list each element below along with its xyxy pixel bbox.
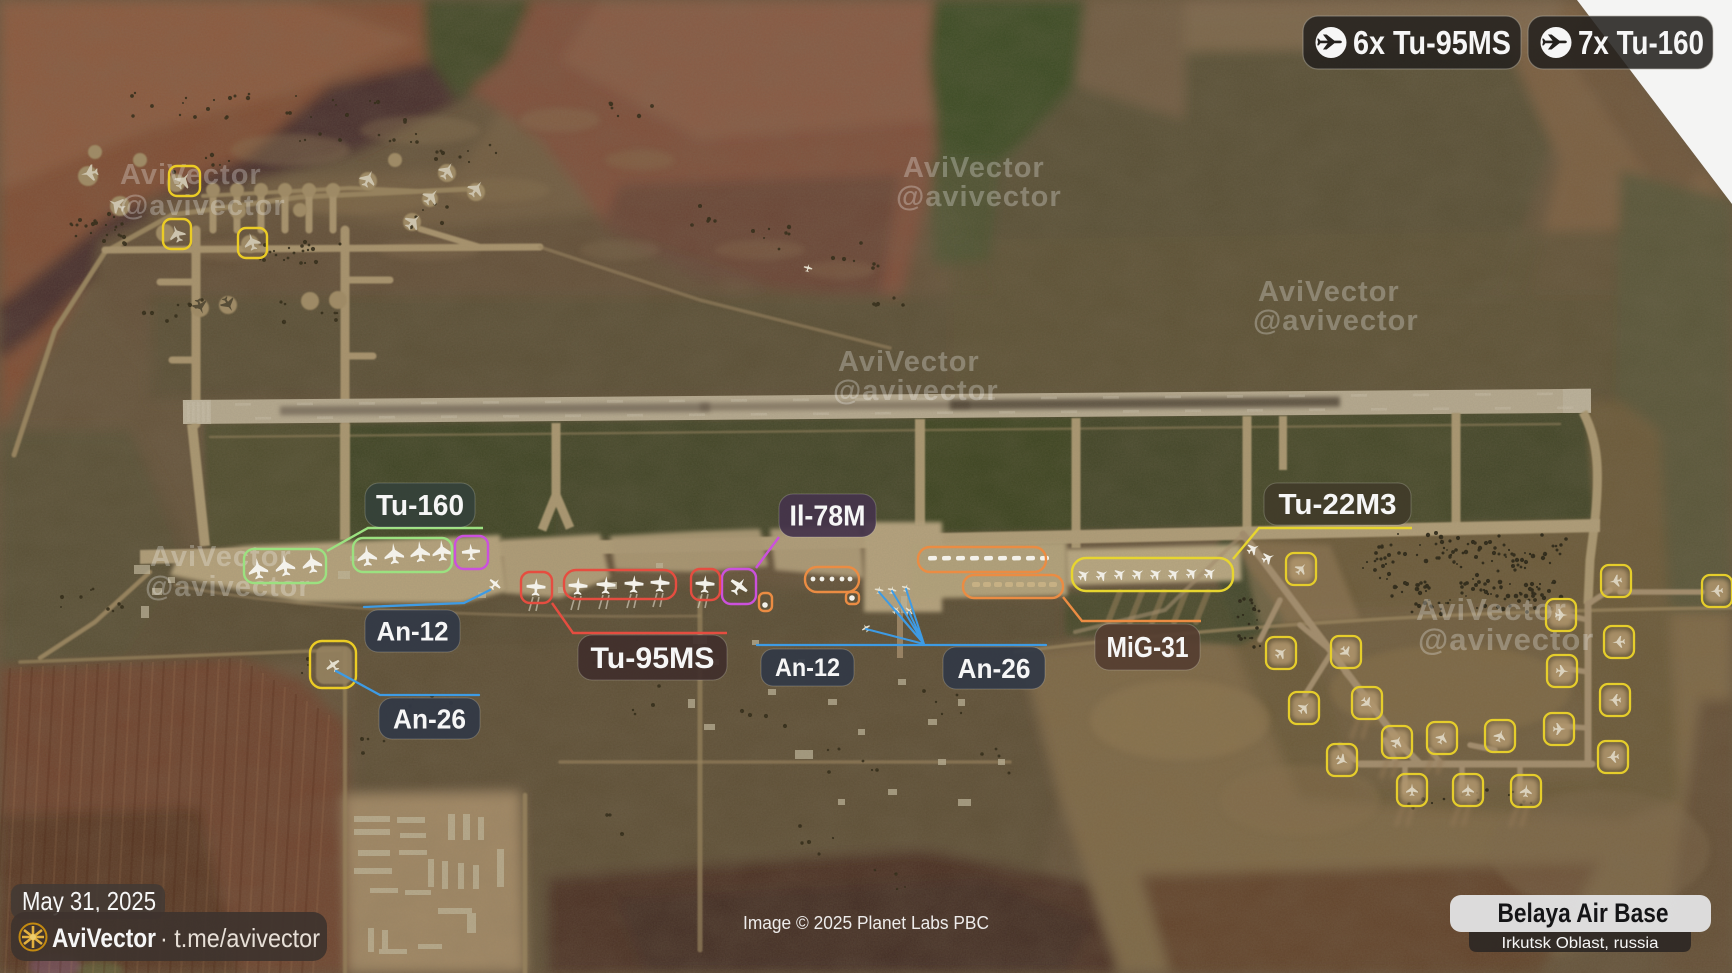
svg-text:· t.me/avivector: · t.me/avivector <box>160 923 320 953</box>
svg-text:Belaya Air Base: Belaya Air Base <box>1498 898 1669 928</box>
svg-text:Tu-95MS: Tu-95MS <box>591 642 715 675</box>
svg-text:AviVector: AviVector <box>838 346 980 378</box>
svg-text:6x Tu-95MS: 6x Tu-95MS <box>1353 24 1511 61</box>
svg-text:Irkutsk Oblast, russia: Irkutsk Oblast, russia <box>1502 935 1659 952</box>
svg-text:AviVector: AviVector <box>1258 276 1400 308</box>
svg-text:May 31, 2025: May 31, 2025 <box>22 886 156 916</box>
svg-text:Tu-22M3: Tu-22M3 <box>1279 489 1397 521</box>
svg-text:@avivector: @avivector <box>1253 305 1419 337</box>
svg-text:@avivector: @avivector <box>145 571 311 603</box>
svg-text:@avivector: @avivector <box>833 375 999 407</box>
svg-text:Image © 2025 Planet Labs PBC: Image © 2025 Planet Labs PBC <box>743 913 989 933</box>
svg-text:@avivector: @avivector <box>1418 622 1594 657</box>
svg-text:7x Tu-160: 7x Tu-160 <box>1578 24 1704 61</box>
svg-text:An-12: An-12 <box>775 654 840 682</box>
svg-text:AviVector: AviVector <box>903 152 1045 184</box>
svg-text:MiG-31: MiG-31 <box>1107 632 1189 664</box>
svg-text:An-26: An-26 <box>393 703 466 734</box>
svg-text:Tu-160: Tu-160 <box>376 490 464 522</box>
svg-text:An-12: An-12 <box>377 617 449 647</box>
svg-text:@avivector: @avivector <box>896 181 1062 213</box>
svg-text:Il-78M: Il-78M <box>790 501 866 533</box>
svg-text:AviVector: AviVector <box>52 923 156 953</box>
svg-text:@avivector: @avivector <box>120 190 286 222</box>
svg-text:AviVector: AviVector <box>150 541 292 573</box>
svg-text:An-26: An-26 <box>958 653 1031 684</box>
svg-text:AviVector: AviVector <box>120 159 262 191</box>
